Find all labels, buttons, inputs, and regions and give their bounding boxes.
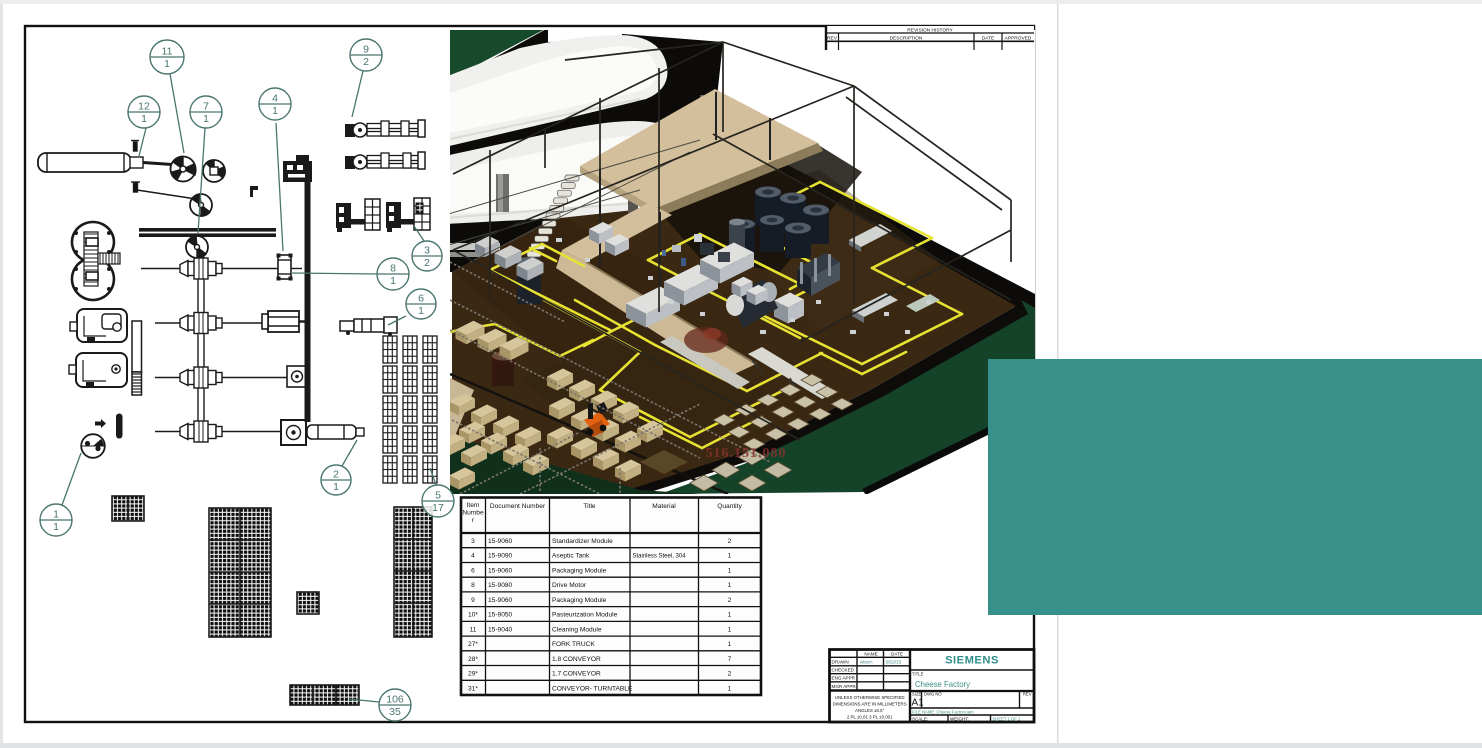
svg-text:Aseptic Tank: Aseptic Tank xyxy=(552,553,590,560)
svg-text:Packaging Module: Packaging Module xyxy=(552,597,607,604)
svg-text:2: 2 xyxy=(728,538,732,545)
svg-text:1: 1 xyxy=(728,685,732,692)
svg-text:SIEMENS: SIEMENS xyxy=(945,655,999,667)
svg-text:Packaging Module: Packaging Module xyxy=(552,568,607,575)
svg-text:8: 8 xyxy=(471,582,475,589)
svg-text:12: 12 xyxy=(138,101,150,113)
svg-text:15-9040: 15-9040 xyxy=(488,626,513,633)
svg-text:2: 2 xyxy=(728,597,732,604)
svg-text:SHEET 1 OF 1: SHEET 1 OF 1 xyxy=(993,717,1022,722)
svg-text:wborn: wborn xyxy=(860,660,873,665)
svg-text:3: 3 xyxy=(471,538,475,545)
svg-text:1: 1 xyxy=(728,626,732,633)
svg-text:15-9080: 15-9080 xyxy=(488,582,513,589)
svg-text:15-9060: 15-9060 xyxy=(488,538,513,545)
svg-text:SCALE:: SCALE: xyxy=(912,717,928,722)
svg-text:ANGLES ±0.5°: ANGLES ±0.5° xyxy=(855,708,885,713)
svg-text:15-9060: 15-9060 xyxy=(488,568,513,575)
svg-text:2: 2 xyxy=(728,671,732,678)
svg-text:35: 35 xyxy=(389,706,401,718)
svg-text:7: 7 xyxy=(728,656,732,663)
svg-text:1: 1 xyxy=(390,275,396,287)
svg-text:15-9090: 15-9090 xyxy=(488,553,513,560)
svg-text:28*: 28* xyxy=(468,656,478,663)
svg-text:DATE: DATE xyxy=(891,651,903,656)
svg-text:REV: REV xyxy=(1023,692,1032,697)
svg-text:1: 1 xyxy=(728,553,732,560)
svg-text:NAME: NAME xyxy=(864,651,877,656)
svg-text:1: 1 xyxy=(728,568,732,575)
svg-text:15-9060: 15-9060 xyxy=(488,597,513,604)
svg-text:CHECKED: CHECKED xyxy=(832,668,855,673)
svg-text:TITLE: TITLE xyxy=(912,672,924,677)
svg-text:Drive Motor: Drive Motor xyxy=(552,582,587,589)
svg-text:4: 4 xyxy=(272,93,278,105)
svg-text:Cheese Factory: Cheese Factory xyxy=(915,680,970,689)
svg-text:2: 2 xyxy=(363,56,369,68)
svg-text:FILE NAME: Cheese Factory.iam: FILE NAME: Cheese Factory.iam xyxy=(912,709,974,714)
svg-text:MGR APPR: MGR APPR xyxy=(832,684,857,689)
svg-text:9: 9 xyxy=(363,44,369,56)
svg-text:11: 11 xyxy=(162,46,173,58)
svg-text:1: 1 xyxy=(333,481,339,493)
svg-text:DATE: DATE xyxy=(982,35,994,41)
svg-text:1: 1 xyxy=(53,521,59,533)
svg-text:2: 2 xyxy=(333,469,339,481)
svg-text:REV: REV xyxy=(827,35,838,41)
svg-text:1: 1 xyxy=(164,58,170,70)
svg-text:Item: Item xyxy=(467,502,480,509)
svg-text:8: 8 xyxy=(390,263,396,275)
svg-text:Pasteurization Module: Pasteurization Module xyxy=(552,612,618,619)
svg-text:APPROVED: APPROVED xyxy=(1005,35,1032,41)
svg-text:REVISION HISTORY: REVISION HISTORY xyxy=(907,27,953,33)
svg-text:FORK TRUCK: FORK TRUCK xyxy=(552,641,595,648)
svg-text:Standardizer Module: Standardizer Module xyxy=(552,538,613,545)
svg-text:WEIGHT:: WEIGHT: xyxy=(950,717,969,722)
svg-text:6: 6 xyxy=(471,568,475,575)
svg-text:2 PL ±0.01 3 PL ±0.001: 2 PL ±0.01 3 PL ±0.001 xyxy=(847,715,893,720)
svg-text:Document Number: Document Number xyxy=(490,503,546,510)
svg-text:11: 11 xyxy=(470,626,477,633)
svg-text:DIMENSIONS ARE IN MILLIMETERS: DIMENSIONS ARE IN MILLIMETERS xyxy=(833,702,907,707)
svg-text:106: 106 xyxy=(386,694,404,706)
svg-text:ENG APPR: ENG APPR xyxy=(832,676,856,681)
svg-text:UNLESS OTHERWISE SPECIFIED: UNLESS OTHERWISE SPECIFIED xyxy=(835,695,905,700)
svg-text:Numbe: Numbe xyxy=(462,510,484,517)
svg-text:3: 3 xyxy=(424,245,430,257)
svg-text:1: 1 xyxy=(53,509,59,521)
svg-text:1: 1 xyxy=(141,113,147,125)
svg-text:DWG NO: DWG NO xyxy=(924,692,942,697)
svg-text:516.151.080: 516.151.080 xyxy=(706,446,787,461)
svg-text:DRAWN: DRAWN xyxy=(832,660,849,665)
svg-text:1: 1 xyxy=(728,641,732,648)
svg-text:4: 4 xyxy=(471,553,475,560)
svg-text:1.7 CONVEYOR: 1.7 CONVEYOR xyxy=(552,671,601,678)
svg-text:31*: 31* xyxy=(468,685,478,692)
svg-text:29*: 29* xyxy=(468,671,478,678)
svg-text:Stainless Steel, 304: Stainless Steel, 304 xyxy=(633,554,687,560)
svg-text:1: 1 xyxy=(203,113,209,125)
svg-text:Cleaning Module: Cleaning Module xyxy=(552,626,602,633)
svg-text:6: 6 xyxy=(418,293,424,305)
svg-text:27*: 27* xyxy=(468,641,478,648)
svg-text:2: 2 xyxy=(424,257,430,269)
svg-text:CONVEYOR- TURNTABLE: CONVEYOR- TURNTABLE xyxy=(552,685,633,692)
svg-text:15-9050: 15-9050 xyxy=(488,612,513,619)
svg-text:Title: Title xyxy=(583,503,596,510)
svg-text:1: 1 xyxy=(728,612,732,619)
svg-text:9/22/15: 9/22/15 xyxy=(886,660,902,665)
svg-text:Material: Material xyxy=(652,503,676,510)
svg-text:A1: A1 xyxy=(912,698,925,709)
svg-text:Quantity: Quantity xyxy=(717,503,742,510)
svg-text:DESCRIPTION: DESCRIPTION xyxy=(890,35,923,41)
svg-text:1: 1 xyxy=(728,582,732,589)
svg-text:1: 1 xyxy=(272,105,278,117)
svg-text:9: 9 xyxy=(471,597,475,604)
svg-text:5: 5 xyxy=(435,490,441,502)
svg-text:7: 7 xyxy=(203,101,209,113)
svg-text:17: 17 xyxy=(432,502,444,514)
svg-text:1.8 CONVEYOR: 1.8 CONVEYOR xyxy=(552,656,601,663)
svg-text:SIZE: SIZE xyxy=(912,692,922,697)
svg-text:1: 1 xyxy=(418,305,424,317)
svg-text:10*: 10* xyxy=(468,612,478,619)
